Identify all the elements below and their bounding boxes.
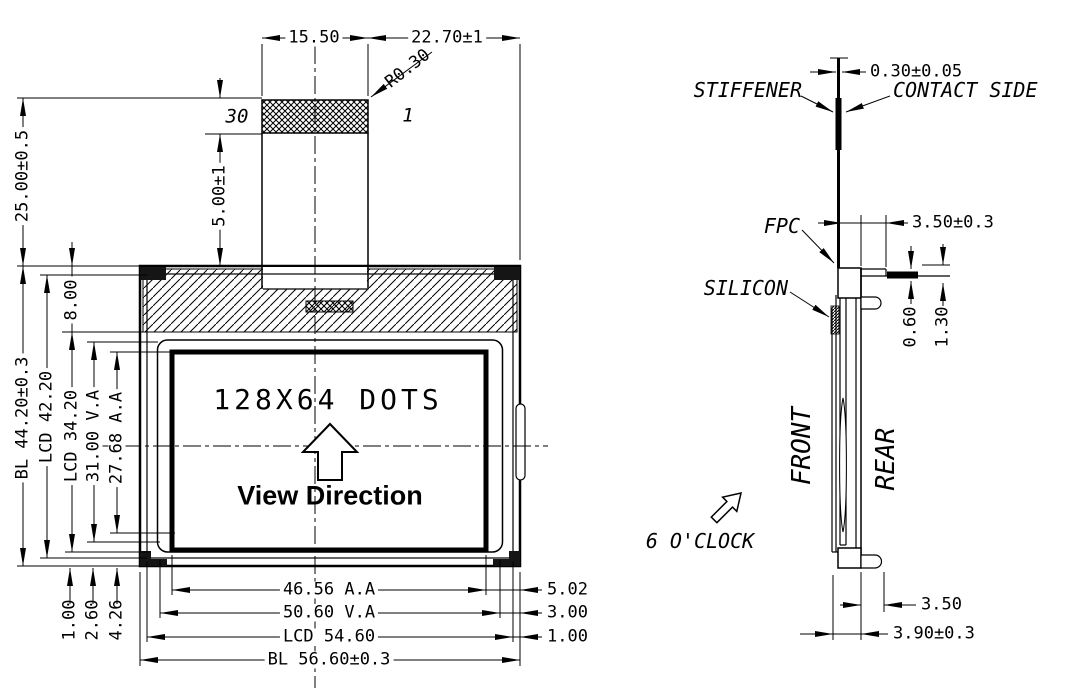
six-oclock-arrow-icon	[711, 493, 741, 523]
drawing-linework	[0, 0, 1076, 695]
front-stack	[831, 295, 846, 552]
silicon-label: SILICON	[704, 278, 788, 298]
view-direction-label: View Direction	[237, 483, 423, 510]
dim-right-1: 5.02	[547, 582, 588, 599]
dim-ledge: 0.60	[903, 307, 920, 348]
dim-thickness: 3.90±0.3	[893, 626, 975, 643]
dim-right-3: 1.00	[547, 629, 588, 646]
dim-bottom-left-2: 2.60	[85, 600, 102, 641]
dim-height-bl: BL 44.20±0.3	[15, 354, 32, 483]
dim-tail-to-edge: 22.70±1	[408, 30, 486, 47]
dim-right-2: 3.00	[547, 605, 588, 622]
rear-label: REAR	[873, 428, 899, 491]
dim-height-va: 31.00 V.A	[86, 387, 103, 485]
right-edge-bump	[516, 404, 525, 480]
lcd-module-drawing: 15.50 22.70±1 R0.30 30 1 25.00±0.5 5.00±…	[0, 0, 1076, 695]
pin-1-label: 1	[402, 107, 413, 126]
dim-height-aa: 27.68 A.A	[109, 389, 126, 487]
dim-width-lcd: LCD 54.60	[280, 629, 378, 646]
dim-tab-gap: 1.30	[935, 307, 952, 348]
front-label: FRONT	[789, 407, 815, 485]
contact-ledge	[887, 272, 918, 279]
dim-tail-width: 15.50	[285, 30, 342, 47]
contact-side-label: CONTACT SIDE	[893, 80, 1038, 100]
top-tab	[861, 265, 950, 309]
stiffener-label: STIFFENER	[694, 80, 802, 100]
display-dots-text: 128X64 DOTS	[213, 386, 442, 414]
center-slot	[306, 301, 353, 312]
dim-top-frame: 8.00	[64, 277, 81, 324]
dim-height-lcd: LCD 42.20	[39, 368, 56, 466]
top-boss	[861, 297, 881, 309]
dim-top-width: 3.50±0.3	[912, 215, 994, 232]
dim-width-aa: 46.56 A.A	[280, 582, 378, 599]
pin-30-label: 30	[226, 108, 249, 127]
dim-bottom-tab: 3.50	[921, 597, 962, 614]
dim-bottom-left-3: 4.26	[109, 600, 126, 641]
dim-width-va: 50.60 V.A	[280, 605, 378, 622]
silicon-strip	[831, 306, 839, 334]
fpc-label: FPC	[764, 216, 800, 236]
dim-height-lcd-inner: LCD 34.20	[64, 387, 81, 485]
dim-bottom-left-1: 1.00	[62, 600, 79, 641]
dim-stiffener-height: 5.00±1	[212, 162, 229, 229]
six-oclock-label: 6 O'CLOCK	[646, 531, 754, 551]
dim-tail-length: 25.00±0.5	[15, 127, 32, 225]
bottom-tab	[861, 555, 882, 568]
dim-width-bl: BL 56.60±0.3	[265, 652, 394, 669]
lcd-cell-lens	[840, 398, 847, 532]
view-direction-arrow-icon	[303, 424, 357, 480]
